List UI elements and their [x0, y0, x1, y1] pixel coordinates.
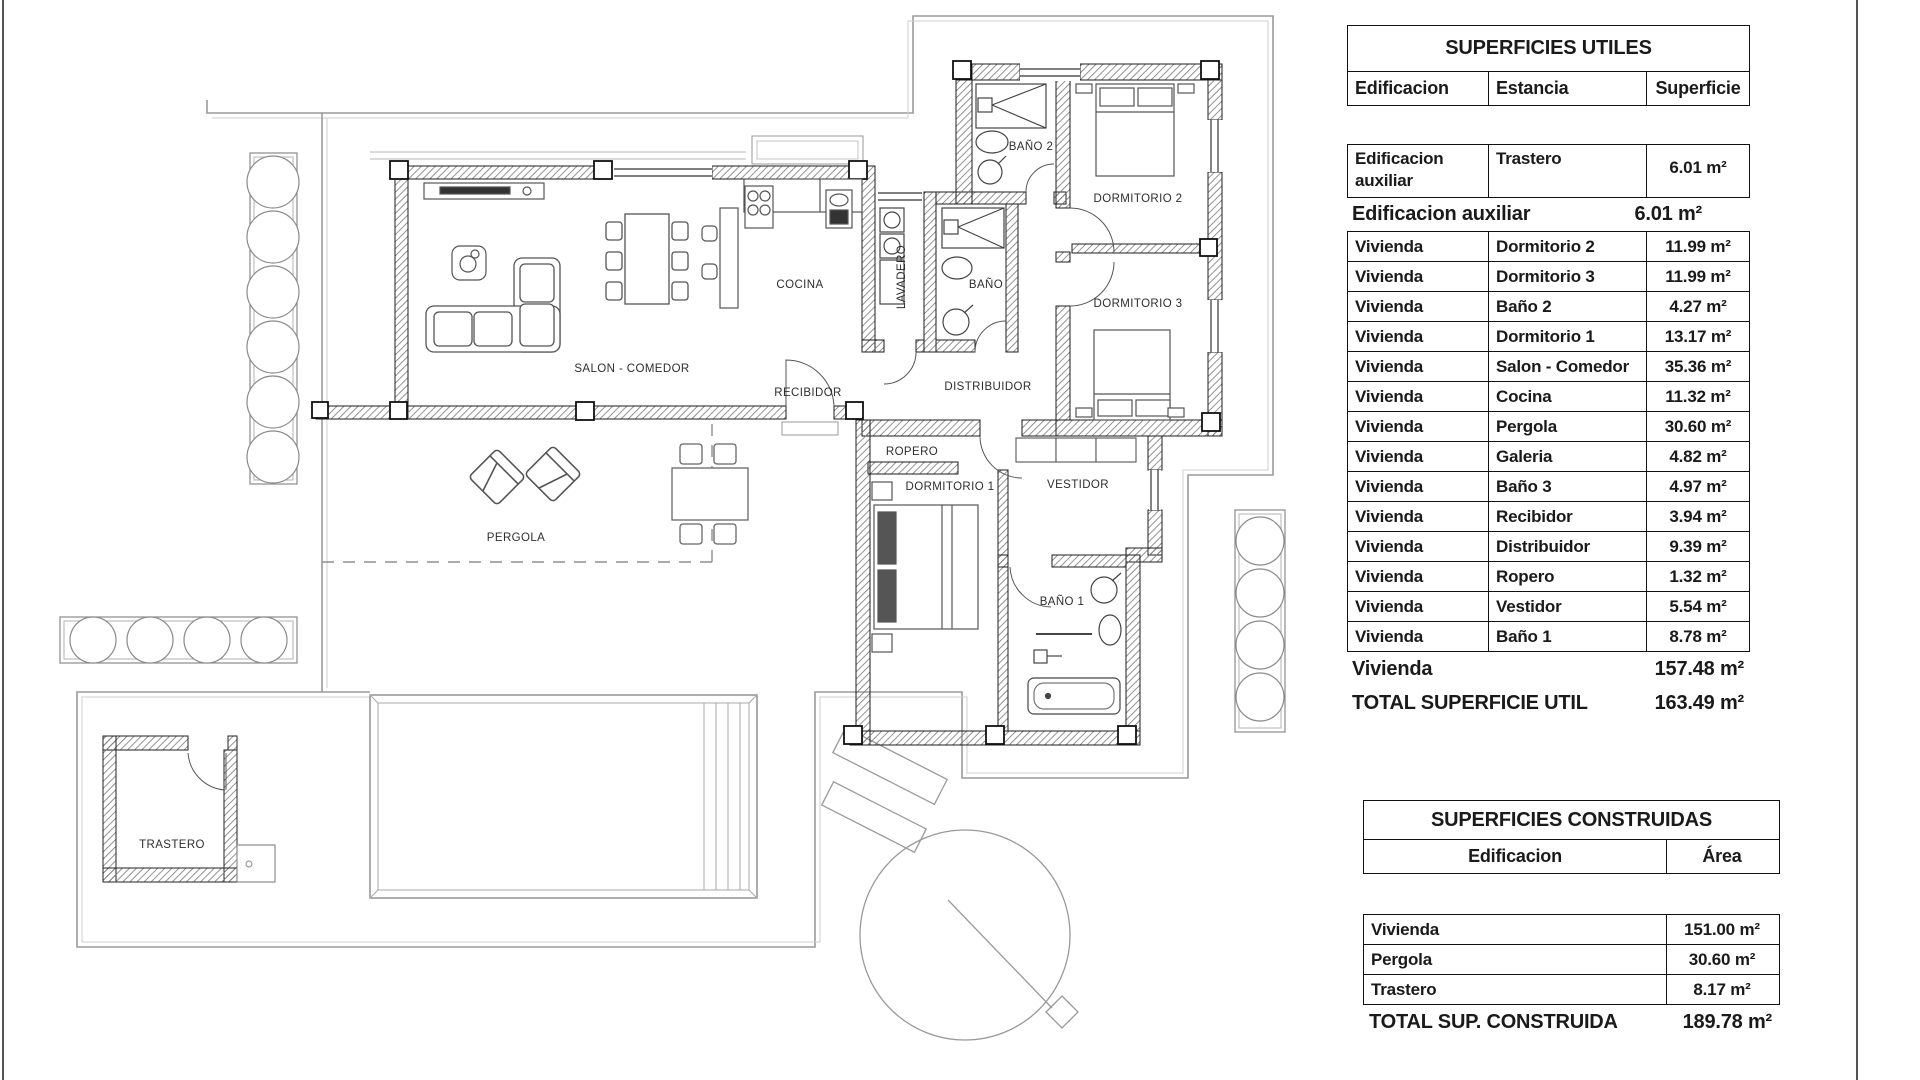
table-row: ViviendaCocina11.32 m² — [1348, 381, 1749, 411]
bano1-fixtures — [1028, 573, 1121, 714]
utiles-total: TOTAL SUPERFICIE UTIL 163.49 m² — [1347, 686, 1750, 720]
room-label-bano: BAÑO — [969, 278, 1003, 291]
superficies-utiles-table: SUPERFICIES UTILES Edificacion Estancia … — [1347, 25, 1750, 720]
room-label-vestidor: VESTIDOR — [1047, 479, 1109, 491]
island-icon — [720, 208, 738, 308]
drawing-sheet: SALON - COMEDOR COCINA LAVADERO BAÑO BAÑ… — [0, 0, 1920, 1080]
table-row: ViviendaDormitorio 113.17 m² — [1348, 321, 1749, 351]
construidas-total: TOTAL SUP. CONSTRUIDA 189.78 m² — [1363, 1005, 1780, 1039]
table-row: ViviendaRopero1.32 m² — [1348, 561, 1749, 591]
bano2-fixtures — [976, 84, 1046, 184]
utiles-col-edificacion: Edificacion — [1348, 72, 1488, 105]
aux-estancia: Trastero — [1488, 145, 1646, 197]
room-label-lavadero: LAVADERO — [896, 245, 908, 309]
table-row: Trastero8.17 m² — [1364, 974, 1779, 1004]
aux-edificacion: Edificacion auxiliar — [1348, 145, 1488, 197]
utiles-col-estancia: Estancia — [1488, 72, 1646, 105]
construidas-col-edificacion: Edificacion — [1364, 840, 1666, 873]
planter-bottom-icon — [60, 617, 297, 663]
planter-left-icon — [247, 153, 299, 484]
room-label-dormitorio3: DORMITORIO 3 — [1094, 298, 1183, 310]
table-row: ViviendaBaño 34.97 m² — [1348, 471, 1749, 501]
stool-icon — [702, 226, 717, 241]
room-label-pergola: PERGOLA — [487, 532, 545, 544]
bed-dorm1-icon — [872, 482, 978, 652]
construidas-col-area: Área — [1666, 840, 1777, 873]
utiles-rows: ViviendaDormitorio 211.99 m² ViviendaDor… — [1347, 231, 1750, 652]
dining-table-icon — [606, 214, 688, 304]
table-row: ViviendaRecibidor3.94 m² — [1348, 501, 1749, 531]
room-label-bano2: BAÑO 2 — [1009, 140, 1054, 153]
bano3-fixtures — [942, 208, 1004, 335]
planter-right-icon — [1235, 510, 1285, 732]
room-label-trastero: TRASTERO — [139, 839, 205, 851]
room-label-ropero: ROPERO — [886, 446, 938, 458]
utiles-title: SUPERFICIES UTILES — [1348, 26, 1749, 71]
table-row: ViviendaDormitorio 311.99 m² — [1348, 261, 1749, 291]
room-label-distribuidor: DISTRIBUIDOR — [944, 381, 1031, 393]
stool-icon — [702, 264, 717, 279]
construidas-rows: Vivienda151.00 m² Pergola30.60 m² Traste… — [1363, 914, 1780, 1005]
construidas-title: SUPERFICIES CONSTRUIDAS — [1364, 801, 1779, 839]
table-row: ViviendaDormitorio 211.99 m² — [1348, 232, 1749, 261]
table-row: ViviendaSalon - Comedor35.36 m² — [1348, 351, 1749, 381]
outdoor-table-icon — [672, 444, 748, 544]
vivienda-subtotal: Vivienda 157.48 m² — [1347, 652, 1750, 686]
table-row: ViviendaBaño 18.78 m² — [1348, 621, 1749, 651]
table-row: ViviendaPergola30.60 m² — [1348, 411, 1749, 441]
pool-icon — [370, 695, 757, 898]
room-label-salon: SALON - COMEDOR — [574, 363, 689, 375]
table-row: Pergola30.60 m² — [1364, 944, 1779, 974]
room-label-recibidor: RECIBIDOR — [774, 387, 842, 399]
closet-icon — [1016, 438, 1136, 462]
table-row: Vivienda151.00 m² — [1364, 915, 1779, 944]
outdoor-armchair-icon — [469, 449, 526, 506]
lamp-table-icon — [452, 246, 486, 280]
table-row: ViviendaBaño 24.27 m² — [1348, 291, 1749, 321]
table-row: ViviendaVestidor5.54 m² — [1348, 591, 1749, 621]
tv-unit-icon — [424, 183, 544, 199]
aux-superficie: 6.01 m² — [1646, 145, 1749, 197]
house-walls — [316, 64, 1222, 745]
room-label-cocina: COCINA — [776, 279, 823, 291]
aux-subtotal: Edificacion auxiliar 6.01 m² — [1347, 198, 1750, 231]
bed-dorm3-icon — [1076, 330, 1184, 420]
table-row: ViviendaDistribuidor9.39 m² — [1348, 531, 1749, 561]
tree-circle-icon — [822, 728, 1078, 1040]
trastero-building — [103, 736, 275, 882]
sofa-icon — [426, 258, 560, 352]
wall-posts — [312, 61, 1220, 744]
room-label-dormitorio1: DORMITORIO 1 — [906, 481, 995, 493]
room-label-dormitorio2: DORMITORIO 2 — [1094, 193, 1183, 205]
superficies-construidas-table: SUPERFICIES CONSTRUIDAS Edificacion Área… — [1363, 800, 1780, 1039]
bed-dorm2-icon — [1076, 84, 1194, 176]
utiles-col-superficie: Superficie — [1646, 72, 1749, 105]
roof-eave-lines — [370, 136, 863, 164]
room-label-bano1: BAÑO 1 — [1040, 595, 1085, 608]
aux-row: Edificacion auxiliar Trastero 6.01 m² — [1347, 144, 1750, 198]
outdoor-armchair-icon — [525, 446, 582, 503]
table-row: ViviendaGaleria4.82 m² — [1348, 441, 1749, 471]
